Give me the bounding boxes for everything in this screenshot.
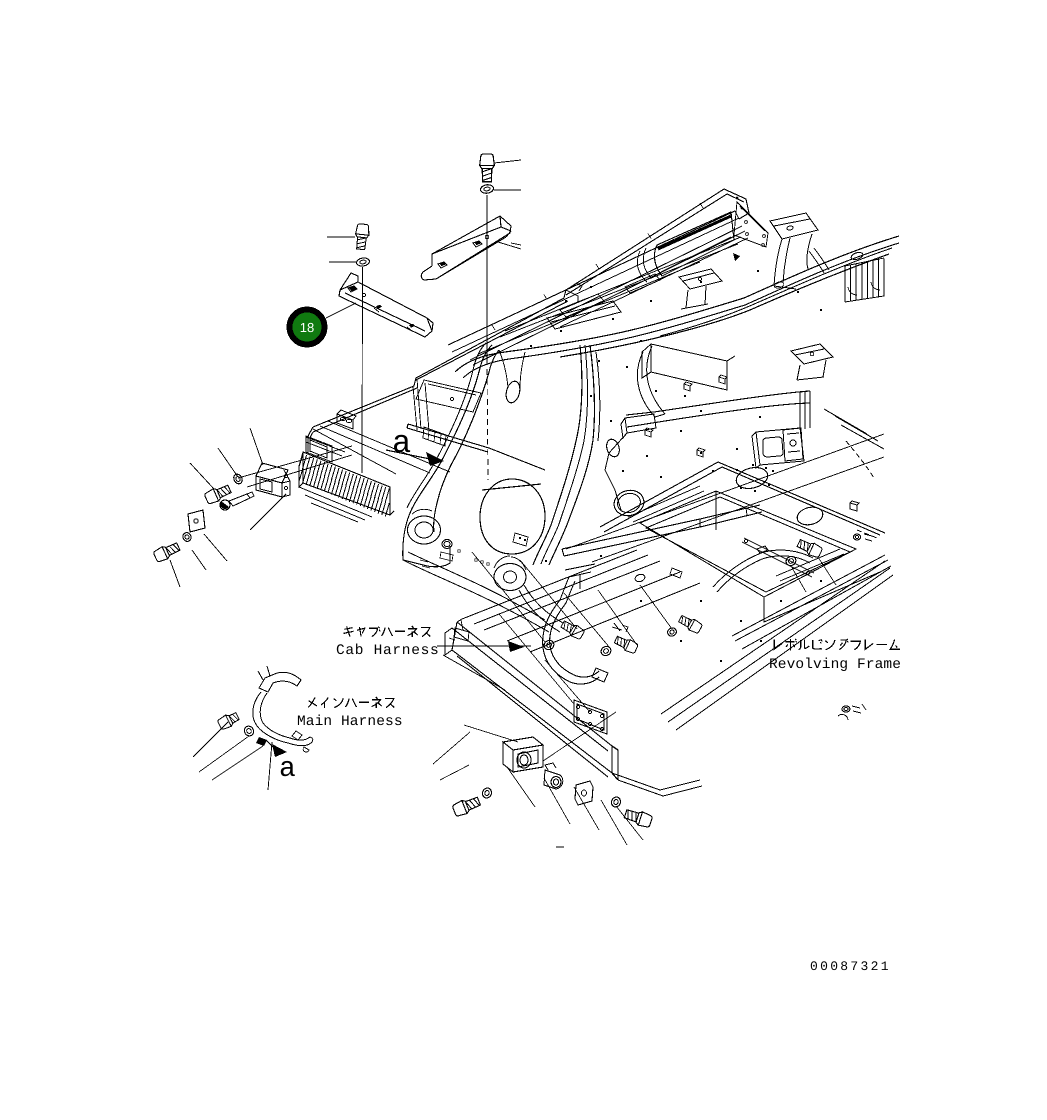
svg-text:a: a: [279, 754, 296, 785]
svg-text:00087321: 00087321: [810, 959, 891, 974]
svg-text:Revolving Frame: Revolving Frame: [769, 657, 901, 673]
svg-text:a: a: [392, 425, 411, 462]
svg-text:Main Harness: Main Harness: [297, 714, 403, 730]
svg-text:18: 18: [300, 320, 314, 335]
svg-text:Cab Harness: Cab Harness: [336, 643, 439, 659]
